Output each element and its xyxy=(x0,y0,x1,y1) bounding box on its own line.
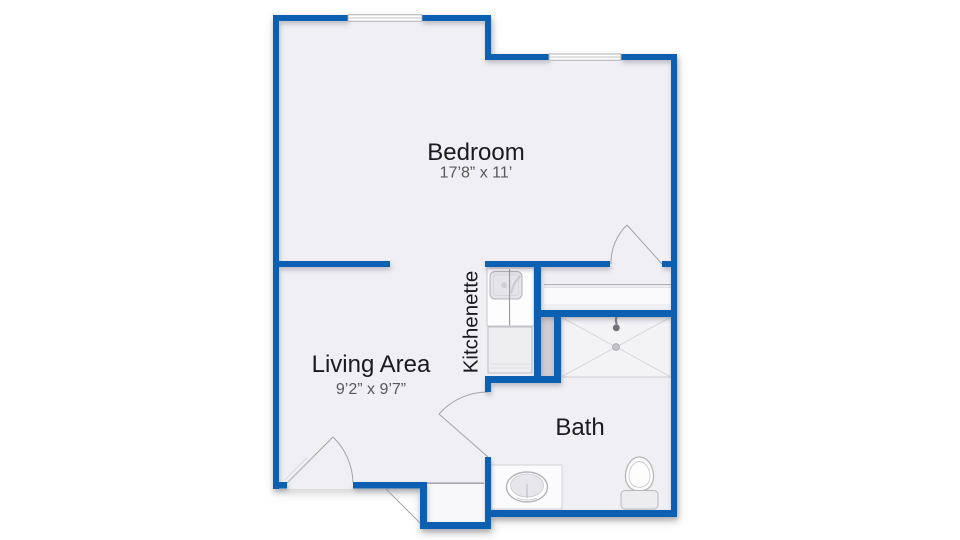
svg-text:17’8” x 11’: 17’8” x 11’ xyxy=(440,165,513,182)
svg-text:Bath: Bath xyxy=(555,414,604,441)
svg-text:Living Area: Living Area xyxy=(312,351,431,378)
svg-text:Bedroom: Bedroom xyxy=(427,139,524,166)
svg-text:Kitchenette: Kitchenette xyxy=(460,271,483,374)
svg-text:9’2” x 9’7”: 9’2” x 9’7” xyxy=(336,381,406,398)
